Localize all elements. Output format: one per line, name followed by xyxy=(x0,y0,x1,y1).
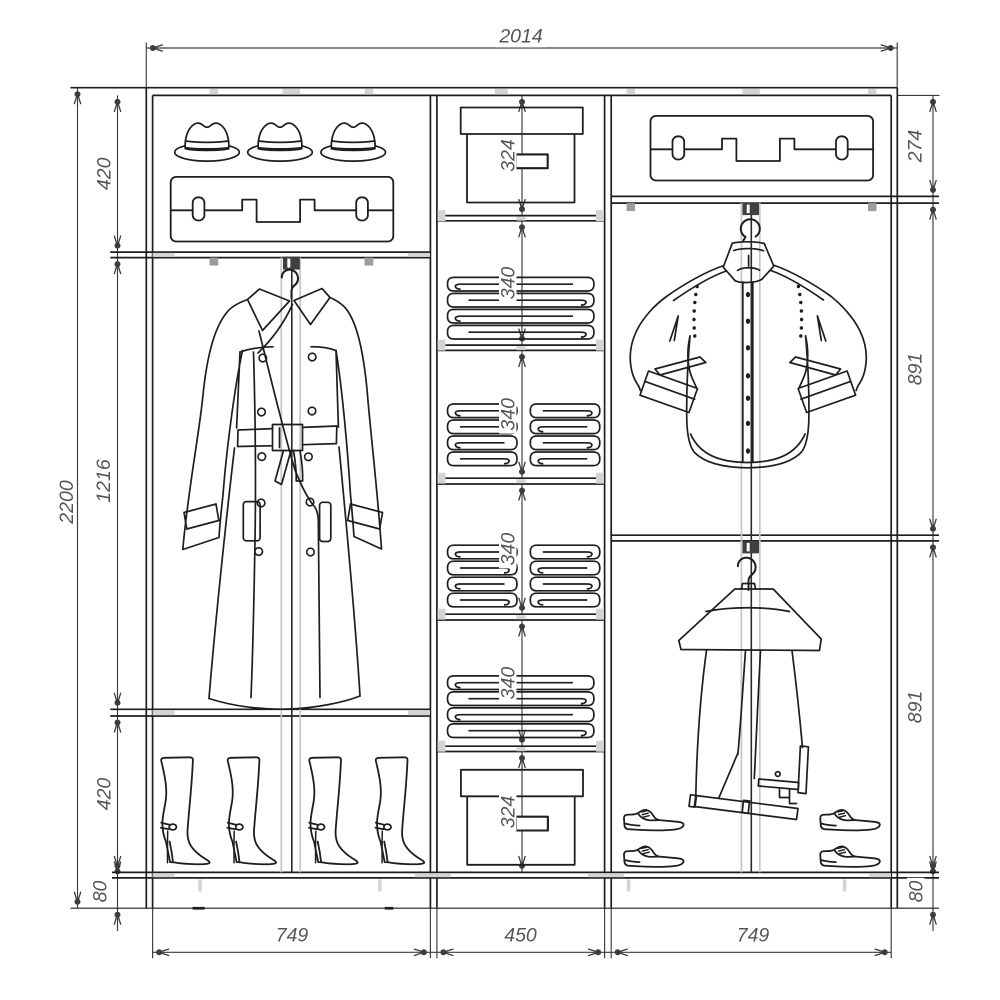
svg-text:420: 420 xyxy=(94,157,116,190)
svg-text:2014: 2014 xyxy=(498,26,543,48)
svg-text:340: 340 xyxy=(498,533,520,566)
svg-text:274: 274 xyxy=(905,130,927,164)
svg-text:420: 420 xyxy=(94,778,116,811)
svg-text:891: 891 xyxy=(905,691,927,724)
svg-text:749: 749 xyxy=(737,925,770,947)
svg-text:2200: 2200 xyxy=(56,480,78,525)
svg-text:324: 324 xyxy=(498,796,520,829)
svg-text:80: 80 xyxy=(906,881,928,903)
svg-text:1216: 1216 xyxy=(93,459,115,503)
svg-text:340: 340 xyxy=(498,398,520,431)
svg-text:340: 340 xyxy=(498,667,520,700)
svg-text:749: 749 xyxy=(276,925,309,947)
svg-text:891: 891 xyxy=(905,353,927,386)
svg-text:450: 450 xyxy=(504,925,537,947)
svg-text:324: 324 xyxy=(498,139,520,172)
svg-text:80: 80 xyxy=(90,881,112,903)
svg-text:340: 340 xyxy=(498,267,520,300)
